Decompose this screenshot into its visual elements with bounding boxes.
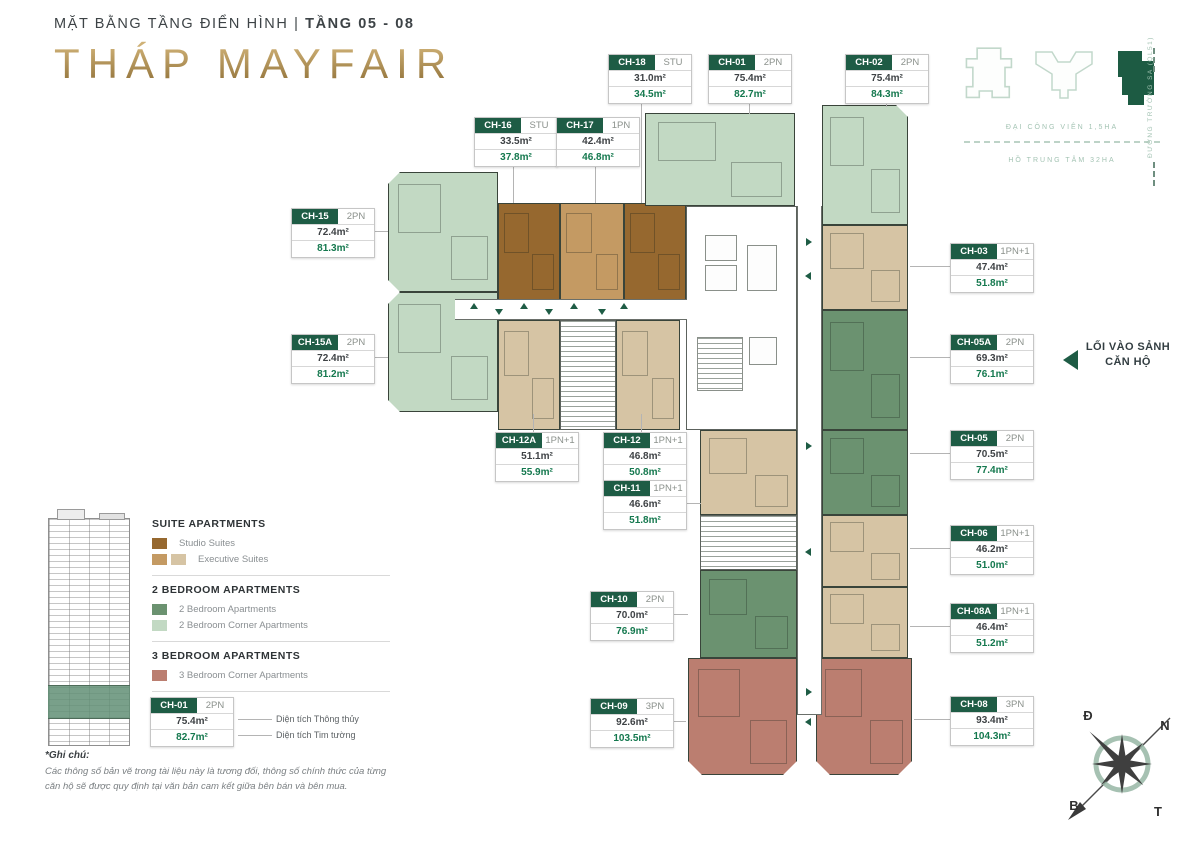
- unit-ch-17: [560, 203, 624, 300]
- legend-divider: [152, 575, 390, 576]
- unit-ch-12a: [498, 320, 560, 430]
- unit-label-ch-12: CH-121PN+146.8m²50.8m²: [603, 432, 687, 482]
- tower-elevation-diagram: [48, 518, 130, 746]
- tower-crown: [57, 509, 85, 520]
- label-connector: [533, 414, 534, 432]
- label-connector: [513, 165, 514, 203]
- unit-label-ch-15a: CH-15A2PN72.4m²81.2m²: [291, 334, 375, 384]
- unit-label-ch-05: CH-052PN70.5m²77.4m²: [950, 430, 1034, 480]
- sample-unit-type: 2PN: [197, 698, 233, 713]
- unit-ch-15: [388, 172, 498, 292]
- label-connector: [687, 503, 701, 504]
- tower-outline-icon-2: [1032, 46, 1096, 106]
- label-connector: [375, 357, 388, 358]
- tower-outline-icon-1: [962, 46, 1018, 106]
- unit-label-ch-11: CH-111PN+146.6m²51.8m²: [603, 480, 687, 530]
- entrance-label-line2: CĂN HỘ: [1085, 355, 1171, 370]
- park-label: ĐẠI CÔNG VIÊN 1,5HA: [962, 124, 1162, 131]
- unit-ch-05: [822, 430, 908, 515]
- label-connector: [674, 614, 688, 615]
- legend-swatch: [152, 538, 167, 549]
- legend-divider: [152, 691, 390, 692]
- compass-label-south: B: [1069, 798, 1078, 813]
- label-connector: [914, 719, 950, 720]
- gross-area-note: Diện tích Tim tường: [276, 730, 355, 740]
- location-minimap: ĐẠI CÔNG VIÊN 1,5HA HỒ TRUNG TÂM 32HA: [962, 46, 1162, 186]
- unit-ch-01: [645, 113, 795, 206]
- tower-roof-slab: [99, 513, 125, 520]
- legend-swatch: [152, 604, 167, 615]
- shore-dashed-line: [964, 141, 1160, 143]
- lobby-entrance-callout: LỐI VÀO SẢNH CĂN HỘ: [1063, 340, 1173, 371]
- sample-unit-id: CH-01: [151, 698, 197, 713]
- entrance-arrow-icon: [1063, 350, 1078, 370]
- legend-item: Studio Suites: [152, 535, 390, 551]
- legend-item: 2 Bedroom Apartments: [152, 601, 390, 617]
- unit-ch-05a: [822, 310, 908, 430]
- unit-ch-08a: [822, 587, 908, 658]
- stair-block-top: [560, 320, 616, 430]
- label-connector: [910, 266, 950, 267]
- unit-label-ch-18: CH-18STU31.0m²34.5m²: [608, 54, 692, 104]
- sample-net-area: 75.4m²: [151, 714, 233, 730]
- unit-ch-03: [822, 225, 908, 310]
- entrance-label-line1: LỐI VÀO SẢNH: [1085, 340, 1171, 355]
- label-connector: [674, 721, 686, 722]
- compass-star: [1068, 710, 1164, 806]
- unit-ch-08: [816, 658, 912, 775]
- footnote: *Ghi chú: Các thông số bản vẽ trong tài …: [45, 750, 393, 794]
- legend-section-title: 3 BEDROOM APARTMENTS: [152, 650, 390, 662]
- unit-ch-11: [700, 430, 797, 515]
- core-block: [686, 206, 797, 430]
- unit-label-ch-17: CH-171PN42.4m²46.8m²: [556, 117, 640, 167]
- unit-label-ch-01: CH-012PN75.4m²82.7m²: [708, 54, 792, 104]
- unit-ch-09: [688, 658, 797, 775]
- unit-ch-06: [822, 515, 908, 587]
- unit-label-ch-03: CH-031PN+147.4m²51.8m²: [950, 243, 1034, 293]
- compass-label-north: N: [1160, 718, 1169, 733]
- label-connector: [375, 231, 388, 232]
- legend: SUITE APARTMENTSStudio SuitesExecutive S…: [152, 518, 390, 700]
- footnote-title: *Ghi chú:: [45, 750, 393, 761]
- label-connector: [595, 165, 596, 203]
- label-connector: [910, 548, 950, 549]
- sample-gross-area: 82.7m²: [151, 730, 233, 746]
- legend-swatch: [152, 670, 167, 681]
- label-key: CH-01 2PN 75.4m² 82.7m² Diện tích Thông …: [150, 697, 234, 747]
- unit-label-ch-08: CH-083PN93.4m²104.3m²: [950, 696, 1034, 746]
- unit-label-ch-15: CH-152PN72.4m²81.3m²: [291, 208, 375, 258]
- unit-label-ch-08a: CH-08A1PN+146.4m²51.2m²: [950, 603, 1034, 653]
- legend-item-label: Executive Suites: [198, 554, 268, 565]
- sample-unit-label: CH-01 2PN 75.4m² 82.7m²: [150, 697, 234, 747]
- unit-label-ch-12a: CH-12A1PN+151.1m²55.9m²: [495, 432, 579, 482]
- net-area-note: Diện tích Thông thủy: [276, 714, 359, 724]
- unit-ch-10: [700, 570, 797, 658]
- compass-rose: Đ N B T: [1058, 700, 1190, 828]
- legend-item-label: 2 Bedroom Corner Apartments: [179, 620, 308, 631]
- legend-item-label: Studio Suites: [179, 538, 235, 549]
- compass-label-west: T: [1154, 804, 1162, 819]
- legend-item: Executive Suites: [152, 551, 390, 567]
- label-connector: [641, 102, 642, 203]
- unit-label-ch-16: CH-16STU33.5m²37.8m²: [474, 117, 558, 167]
- road-label: ĐƯỜNG TRƯỜNG SA (QL51): [1147, 78, 1154, 158]
- highlighted-floors-band: [48, 685, 130, 719]
- legend-swatch: [152, 620, 167, 631]
- lake-label: HỒ TRUNG TÂM 32HA: [962, 157, 1162, 164]
- label-connector: [910, 453, 950, 454]
- legend-divider: [152, 641, 390, 642]
- legend-section-title: SUITE APARTMENTS: [152, 518, 390, 530]
- unit-label-ch-02: CH-022PN75.4m²84.3m²: [845, 54, 929, 104]
- unit-ch-18: [624, 203, 686, 300]
- label-connector: [910, 626, 950, 627]
- road-label-column: ĐƯỜNG TRƯỜNG SA (QL51): [1146, 48, 1162, 186]
- unit-ch-16: [498, 203, 560, 300]
- label-connector: [910, 357, 950, 358]
- unit-label-ch-06: CH-061PN+146.2m²51.0m²: [950, 525, 1034, 575]
- legend-swatch: [152, 554, 167, 565]
- legend-item-label: 2 Bedroom Apartments: [179, 604, 276, 615]
- legend-item: 2 Bedroom Corner Apartments: [152, 617, 390, 633]
- legend-section-title: 2 BEDROOM APARTMENTS: [152, 584, 390, 596]
- unit-ch-12: [616, 320, 680, 430]
- compass-label-east: Đ: [1083, 708, 1092, 723]
- corridor-vertical: [797, 206, 822, 715]
- label-connector: [641, 414, 642, 432]
- floor-plan-page: { "header": { "plan_label": "MẶT BẰNG TẦ…: [0, 0, 1200, 843]
- unit-label-ch-09: CH-093PN92.6m²103.5m²: [590, 698, 674, 748]
- legend-item: 3 Bedroom Corner Apartments: [152, 667, 390, 683]
- footnote-text: Các thông số bản vẽ trong tài liệu này l…: [45, 765, 393, 794]
- stair-block-bottom: [700, 515, 797, 570]
- legend-swatch: [171, 554, 186, 565]
- legend-item-label: 3 Bedroom Corner Apartments: [179, 670, 308, 681]
- unit-ch-02: [822, 105, 908, 225]
- unit-label-ch-05a: CH-05A2PN69.3m²76.1m²: [950, 334, 1034, 384]
- unit-label-ch-10: CH-102PN70.0m²76.9m²: [590, 591, 674, 641]
